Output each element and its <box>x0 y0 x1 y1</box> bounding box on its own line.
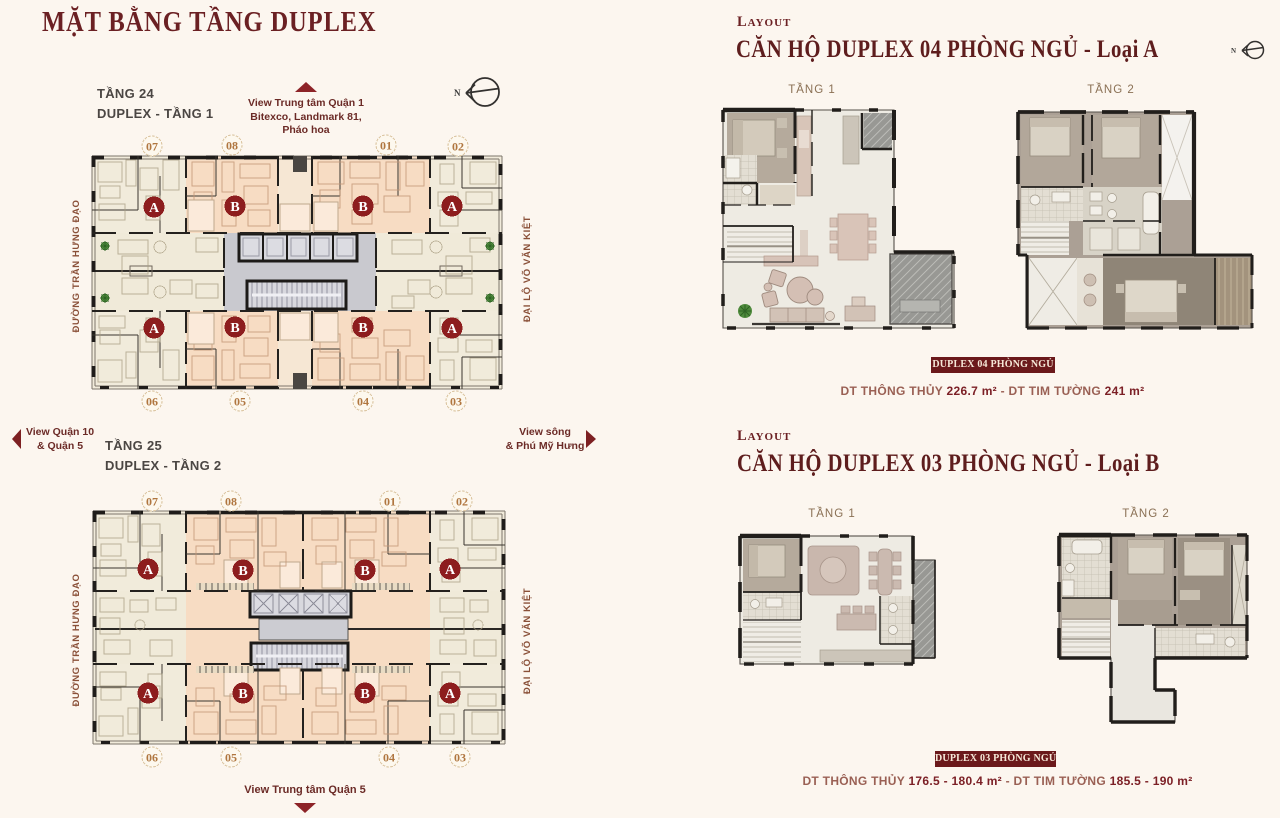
svg-text:06: 06 <box>146 395 158 409</box>
svg-text:A: A <box>149 201 160 216</box>
svg-text:N: N <box>1231 47 1236 55</box>
svg-text:A: A <box>445 563 456 578</box>
svg-text:B: B <box>358 321 367 336</box>
svg-text:05: 05 <box>234 395 246 409</box>
svg-text:ĐƯỜNG TRẦN HƯNG ĐẠO: ĐƯỜNG TRẦN HƯNG ĐẠO <box>70 574 82 707</box>
svg-text:01: 01 <box>384 495 396 509</box>
svg-text:ĐẠI LỘ VÕ VĂN KIỆT: ĐẠI LỘ VÕ VĂN KIỆT <box>521 216 533 322</box>
svg-text:A: A <box>447 322 458 337</box>
svg-text:B: B <box>238 687 247 702</box>
svg-text:07: 07 <box>146 495 158 509</box>
svg-text:B: B <box>358 200 367 215</box>
svg-text:A: A <box>149 322 160 337</box>
svg-text:02: 02 <box>456 495 468 509</box>
svg-text:ĐƯỜNG TRẦN HƯNG ĐẠO: ĐƯỜNG TRẦN HƯNG ĐẠO <box>70 200 82 333</box>
svg-text:A: A <box>447 200 458 215</box>
svg-text:B: B <box>230 321 239 336</box>
svg-text:04: 04 <box>383 751 395 765</box>
svg-text:08: 08 <box>226 139 238 153</box>
svg-text:ĐẠI LỘ VÕ VĂN KIỆT: ĐẠI LỘ VÕ VĂN KIỆT <box>521 588 533 694</box>
svg-text:B: B <box>360 687 369 702</box>
svg-text:01: 01 <box>380 139 392 153</box>
svg-text:08: 08 <box>225 495 237 509</box>
svg-text:06: 06 <box>146 751 158 765</box>
svg-text:05: 05 <box>225 751 237 765</box>
svg-text:02: 02 <box>452 140 464 154</box>
svg-text:04: 04 <box>357 395 369 409</box>
svg-text:A: A <box>143 563 154 578</box>
svg-text:B: B <box>230 200 239 215</box>
svg-text:A: A <box>143 687 154 702</box>
svg-text:03: 03 <box>450 395 462 409</box>
svg-text:B: B <box>360 564 369 579</box>
svg-text:B: B <box>238 564 247 579</box>
svg-text:03: 03 <box>454 751 466 765</box>
svg-text:07: 07 <box>146 140 158 154</box>
svg-text:A: A <box>445 687 456 702</box>
